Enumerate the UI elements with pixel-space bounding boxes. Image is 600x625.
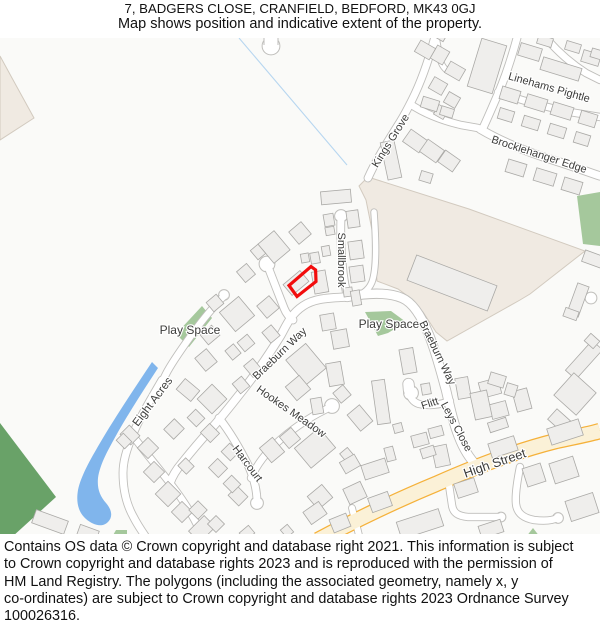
svg-text:Play Space: Play Space — [359, 317, 420, 331]
svg-text:Smallbrook: Smallbrook — [335, 232, 347, 288]
svg-text:Play Space: Play Space — [160, 323, 221, 337]
